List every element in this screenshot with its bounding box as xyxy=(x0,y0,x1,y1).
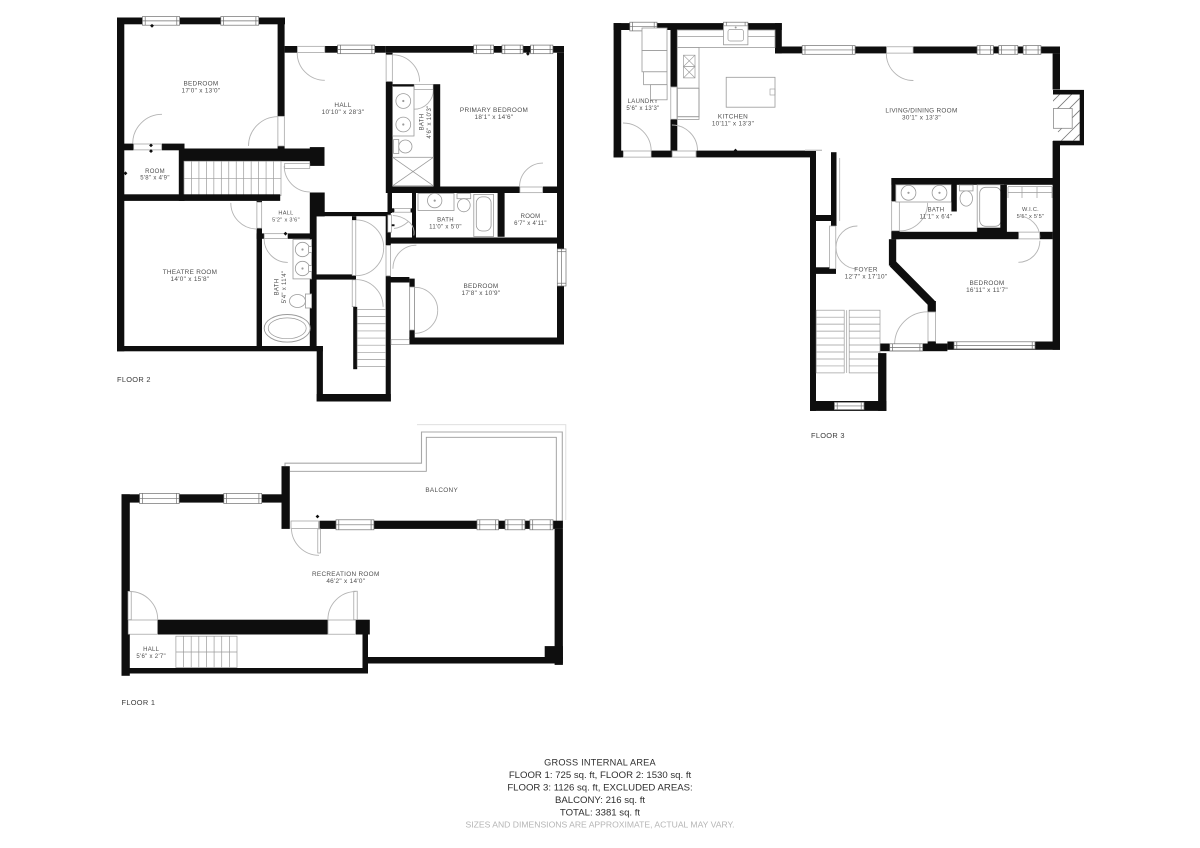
svg-text:4'6" x 10'3": 4'6" x 10'3" xyxy=(427,105,433,138)
svg-text:BATH: BATH xyxy=(420,114,426,131)
svg-text:TOTAL: 3381 sq. ft: TOTAL: 3381 sq. ft xyxy=(560,808,640,819)
svg-text:FLOOR 1: FLOOR 1 xyxy=(122,698,156,707)
svg-text:30'1" x 13'3": 30'1" x 13'3" xyxy=(902,114,941,121)
svg-text:14'0" x 15'8": 14'0" x 15'8" xyxy=(171,276,210,283)
svg-text:FLOOR 3: 1126 sq. ft, EXCLUDED: FLOOR 3: 1126 sq. ft, EXCLUDED AREAS: xyxy=(507,783,692,794)
svg-text:FLOOR 1: 725 sq. ft, FLOOR 2:: FLOOR 1: 725 sq. ft, FLOOR 2: 1530 sq. f… xyxy=(509,770,692,781)
svg-text:FLOOR 2: FLOOR 2 xyxy=(117,375,151,384)
svg-text:12'7" x 17'10": 12'7" x 17'10" xyxy=(845,273,888,280)
svg-text:BALCONY: 216 sq. ft: BALCONY: 216 sq. ft xyxy=(555,795,645,806)
svg-text:10'11" x 13'3": 10'11" x 13'3" xyxy=(712,120,754,127)
svg-text:BALCONY: BALCONY xyxy=(425,487,458,494)
svg-text:16'11" x 11'7": 16'11" x 11'7" xyxy=(966,287,1008,294)
svg-text:18'1" x 14'6": 18'1" x 14'6" xyxy=(475,114,514,121)
svg-text:BATH: BATH xyxy=(437,218,454,224)
svg-text:HALL: HALL xyxy=(278,211,293,217)
svg-text:17'0" x 13'0": 17'0" x 13'0" xyxy=(182,87,221,94)
svg-text:11'1" x 6'4": 11'1" x 6'4" xyxy=(920,214,953,220)
svg-text:GROSS INTERNAL AREA: GROSS INTERNAL AREA xyxy=(544,758,656,768)
svg-text:BATH: BATH xyxy=(928,208,945,214)
svg-text:10'10" x 28'3": 10'10" x 28'3" xyxy=(322,109,365,116)
svg-text:5'6" x 2'7": 5'6" x 2'7" xyxy=(136,654,166,660)
svg-text:FLOOR 3: FLOOR 3 xyxy=(811,431,845,440)
svg-text:5'5" x 5'5": 5'5" x 5'5" xyxy=(1017,214,1045,220)
svg-text:ROOM: ROOM xyxy=(521,214,541,220)
svg-text:5'8" x 4'9": 5'8" x 4'9" xyxy=(140,176,170,182)
svg-text:HALL: HALL xyxy=(143,647,160,653)
svg-text:11'0" x 5'0": 11'0" x 5'0" xyxy=(429,224,462,230)
svg-text:5'2" x 3'6": 5'2" x 3'6" xyxy=(272,217,300,223)
svg-text:SIZES AND DIMENSIONS ARE APPRO: SIZES AND DIMENSIONS ARE APPROXIMATE, AC… xyxy=(465,820,734,830)
svg-text:5'4" x 11'4": 5'4" x 11'4" xyxy=(282,271,288,304)
svg-text:5'6" x 13'3": 5'6" x 13'3" xyxy=(626,106,659,112)
svg-text:17'8" x 10'9": 17'8" x 10'9" xyxy=(462,290,501,297)
svg-text:W.I.C.: W.I.C. xyxy=(1022,207,1039,213)
svg-text:6'7" x 4'11": 6'7" x 4'11" xyxy=(514,221,547,227)
svg-text:BATH: BATH xyxy=(275,279,281,296)
svg-text:ROOM: ROOM xyxy=(145,169,165,175)
svg-text:46'2" x 14'0": 46'2" x 14'0" xyxy=(326,578,365,585)
